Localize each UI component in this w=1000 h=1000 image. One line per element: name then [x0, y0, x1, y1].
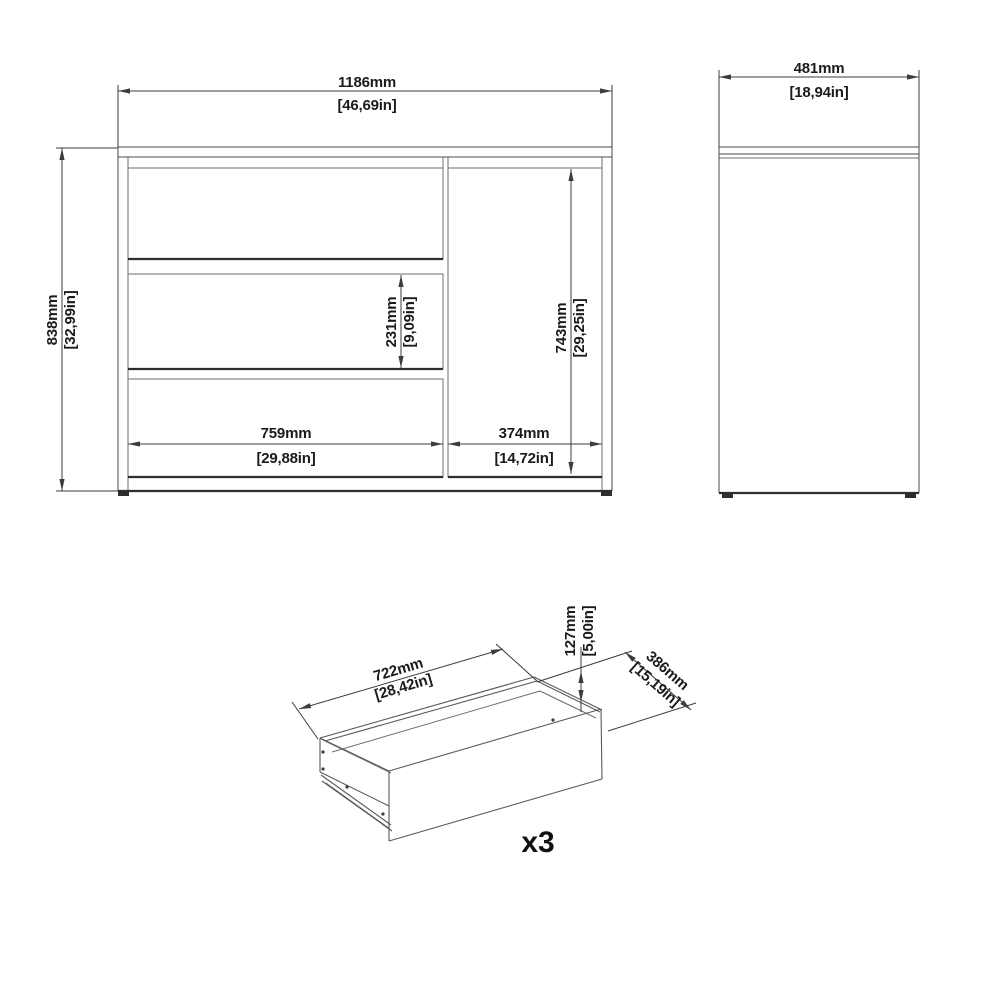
- side-foot-right: [905, 493, 916, 498]
- drawer-slide-rail: [321, 775, 392, 831]
- screw-dot: [321, 767, 324, 770]
- dim-door-width-mm: 374mm: [499, 425, 550, 442]
- dim-drawer-front-height-inch: [5,00in]: [580, 605, 597, 656]
- dim-drawer-width-inch: [29,88in]: [256, 450, 315, 467]
- drawer-left-end-bottom: [320, 772, 389, 806]
- side-view: 481mm [18,94in]: [719, 60, 919, 498]
- dim-door-section-width: 374mm [14,72in]: [448, 425, 602, 467]
- drawer-inner-bottom-seam: [332, 691, 540, 752]
- dim-drawer-inner-depth: 386mm [15,19in]: [537, 645, 696, 731]
- screw-dot: [345, 785, 348, 788]
- front-top-panel: [118, 147, 612, 157]
- dim-overall-depth: 481mm [18,94in]: [719, 60, 919, 147]
- drawer-left-end-top-inner: [325, 741, 391, 773]
- drawer-front-panel: [389, 709, 602, 841]
- front-foot-left: [118, 491, 129, 496]
- dim-overall-height: 838mm [32,99in]: [44, 148, 118, 491]
- front-view: 1186mm [46,69in] 838mm [32,99in] 759mm […: [44, 74, 612, 496]
- dim-overall-height-inch: [32,99in]: [62, 290, 79, 349]
- drawer-front-1: [128, 168, 443, 259]
- side-top-panel: [719, 147, 919, 154]
- technical-drawing-canvas: 1186mm [46,69in] 838mm [32,99in] 759mm […: [0, 0, 1000, 1000]
- screw-dot: [381, 812, 384, 815]
- dim-drawer-height-mm: 231mm: [383, 297, 400, 348]
- drawer-inner-bottom-right-seam: [540, 691, 596, 718]
- drawer-right-end-top-inner: [537, 681, 600, 712]
- dim-door-width-inch: [14,72in]: [494, 450, 553, 467]
- furniture-dimension-diagram: 1186mm [46,69in] 838mm [32,99in] 759mm […: [0, 0, 1000, 1000]
- drawer-isometric-view: 722mm [28,42in] 386mm [15,19in] 127mm [5…: [292, 605, 696, 859]
- dim-door-height-mm: 743mm: [553, 303, 570, 354]
- drawer-quantity-label: x3: [521, 826, 554, 859]
- front-foot-right: [601, 491, 612, 496]
- side-foot-left: [722, 493, 733, 498]
- screw-dot: [551, 718, 554, 721]
- dim-drawer-width-mm: 759mm: [261, 425, 312, 442]
- dim-overall-width-mm: 1186mm: [338, 74, 396, 91]
- dim-drawer-front-height: 231mm [9,09in]: [383, 275, 418, 368]
- drawer-left-end-top: [320, 738, 389, 771]
- dim-drawer-height-inch: [9,09in]: [401, 296, 418, 347]
- dim-overall-width: 1186mm [46,69in]: [118, 74, 612, 147]
- dim-drawer-front-height-mm: 127mm: [562, 606, 579, 657]
- dim-depth-inch: [18,94in]: [789, 84, 848, 101]
- dim-door-height: 743mm [29,25in]: [553, 169, 588, 474]
- drawer-back-top-inner: [325, 681, 537, 741]
- dim-door-height-inch: [29,25in]: [571, 298, 588, 357]
- screw-dot: [321, 750, 324, 753]
- dim-overall-height-mm: 838mm: [44, 295, 61, 346]
- dim-overall-width-inch: [46,69in]: [337, 97, 396, 114]
- dim-drawer-section-width: 759mm [29,88in]: [128, 425, 443, 467]
- dim-depth-mm: 481mm: [794, 60, 845, 77]
